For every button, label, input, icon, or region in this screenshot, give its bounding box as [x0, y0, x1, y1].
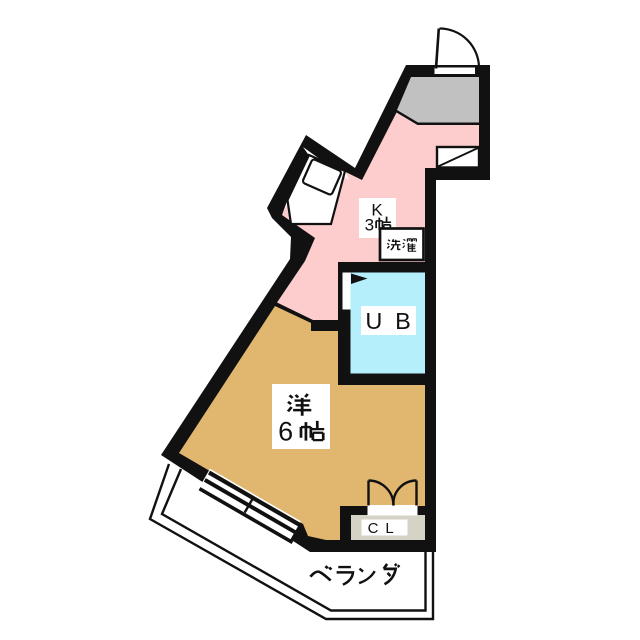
svg-text:B: B — [395, 308, 411, 334]
svg-text:L: L — [385, 520, 393, 537]
svg-text:U: U — [365, 308, 382, 334]
svg-text:3: 3 — [365, 216, 374, 235]
svg-text:6: 6 — [278, 416, 293, 446]
svg-text:C: C — [368, 520, 379, 537]
